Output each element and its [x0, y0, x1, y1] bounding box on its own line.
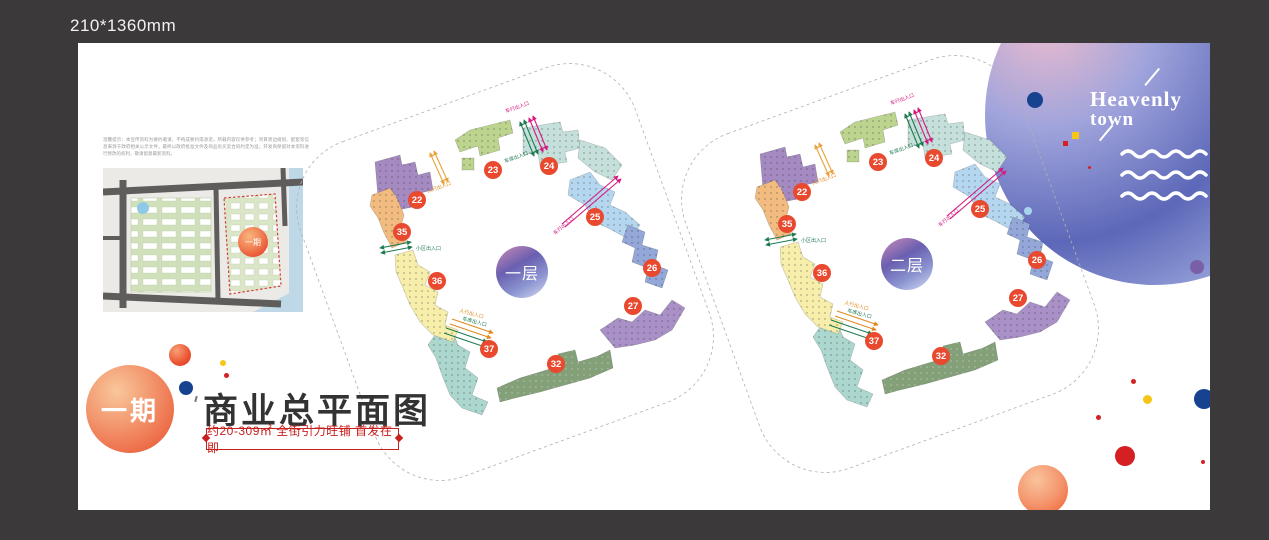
unit-marker: 23 — [484, 161, 502, 179]
unit-marker: 26 — [1028, 251, 1046, 269]
subtitle-text: 约20-309㎡ 全街引力旺铺 首发在即 — [207, 422, 398, 456]
unit-marker: 35 — [393, 223, 411, 241]
floor-1-badge: 一层 — [496, 246, 548, 298]
floor-2-badge: 二层 — [881, 238, 933, 290]
unit-marker: 26 — [643, 259, 661, 277]
poster: Heavenly town 温馨提示：本宣传资料为要约邀请，不构成要约或承诺，所… — [78, 43, 1210, 510]
unit-marker: 24 — [925, 149, 943, 167]
unit-marker: 22 — [793, 183, 811, 201]
design-canvas: { "canvas": {"size_label": "210*1360mm"}… — [0, 0, 1269, 540]
unit-marker: 36 — [428, 272, 446, 290]
unit-marker: 24 — [540, 157, 558, 175]
unit-marker: 37 — [865, 332, 883, 350]
subtitle-banner: 约20-309㎡ 全街引力旺铺 首发在即 — [206, 428, 399, 450]
unit-marker: 22 — [408, 191, 426, 209]
unit-marker: 25 — [586, 208, 604, 226]
unit-marker: 27 — [1009, 289, 1027, 307]
artboard-size-label: 210*1360mm — [70, 16, 176, 36]
phase-badge: 一期 — [86, 365, 174, 453]
unit-marker: 36 — [813, 264, 831, 282]
unit-marker: 37 — [480, 340, 498, 358]
unit-marker: 32 — [547, 355, 565, 373]
unit-marker: 27 — [624, 297, 642, 315]
unit-marker: 32 — [932, 347, 950, 365]
unit-marker: 35 — [778, 215, 796, 233]
unit-marker: 23 — [869, 153, 887, 171]
unit-marker: 25 — [971, 200, 989, 218]
